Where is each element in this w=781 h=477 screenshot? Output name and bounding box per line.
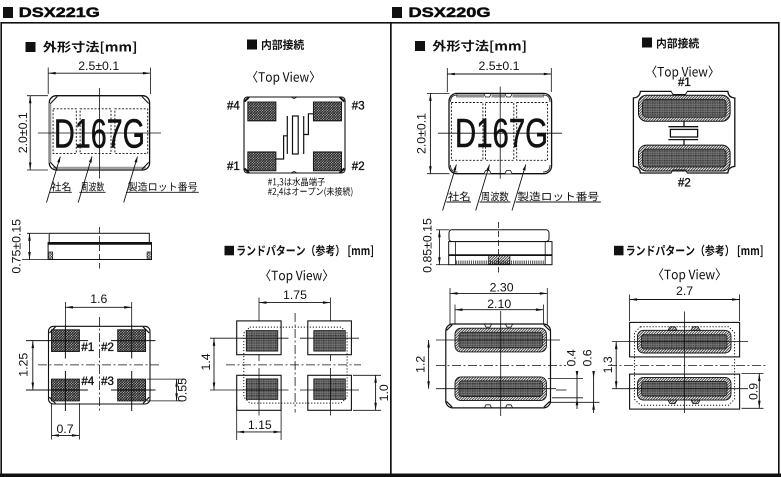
svg-text:1.3: 1.3 xyxy=(601,356,615,373)
svg-text:1.0: 1.0 xyxy=(377,384,391,401)
svg-text:2.5±0.1: 2.5±0.1 xyxy=(78,59,119,73)
svg-text:DSX220G: DSX220G xyxy=(409,4,491,20)
svg-text:#1: #1 xyxy=(678,77,691,89)
svg-text:#1: #1 xyxy=(81,342,94,354)
svg-text:#3: #3 xyxy=(352,100,365,112)
svg-text:#2: #2 xyxy=(101,342,114,354)
svg-text:0.75±0.15: 0.75±0.15 xyxy=(10,219,24,274)
svg-text:#2: #2 xyxy=(352,161,365,173)
svg-text:1.2: 1.2 xyxy=(414,356,428,373)
svg-text:#2: #2 xyxy=(678,178,691,190)
svg-text:0.7: 0.7 xyxy=(56,422,73,436)
svg-text:#3: #3 xyxy=(101,376,114,388)
svg-text:1.75: 1.75 xyxy=(283,288,307,302)
svg-text:#1: #1 xyxy=(227,161,240,173)
svg-text:#4: #4 xyxy=(227,100,240,112)
svg-text:2.0±0.1: 2.0±0.1 xyxy=(415,113,429,154)
svg-text:2.0±0.1: 2.0±0.1 xyxy=(16,112,30,153)
svg-text:DSX221G: DSX221G xyxy=(19,4,100,20)
svg-text:0.85±0.15: 0.85±0.15 xyxy=(421,218,435,273)
svg-text:2.10: 2.10 xyxy=(487,297,511,311)
svg-text:1.6: 1.6 xyxy=(90,292,107,306)
svg-text:#4: #4 xyxy=(81,376,94,388)
svg-text:0.6: 0.6 xyxy=(581,349,595,366)
svg-text:1.25: 1.25 xyxy=(17,353,31,377)
svg-text:0.55: 0.55 xyxy=(176,378,190,402)
svg-text:0.4: 0.4 xyxy=(564,349,578,366)
svg-text:0.9: 0.9 xyxy=(746,383,760,400)
svg-text:2.5±0.1: 2.5±0.1 xyxy=(479,59,520,73)
svg-text:2.30: 2.30 xyxy=(490,280,514,294)
svg-text:2.7: 2.7 xyxy=(676,284,693,298)
svg-text:1.15: 1.15 xyxy=(248,418,272,432)
svg-text:1.4: 1.4 xyxy=(199,353,213,370)
